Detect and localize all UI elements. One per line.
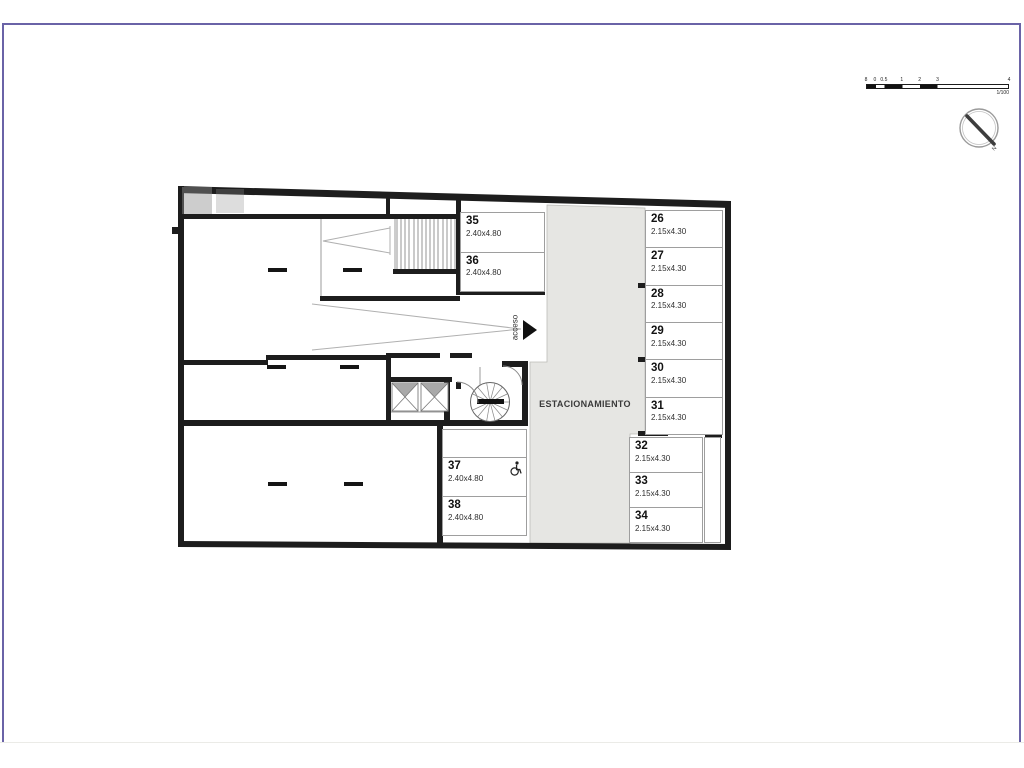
parking-spot-number: 33 bbox=[635, 475, 702, 489]
parking-spot: 31 2.15x4.30 bbox=[645, 397, 723, 435]
parking-spot-size: 2.40x4.80 bbox=[466, 229, 544, 239]
parking-spot: 34 2.15x4.30 bbox=[629, 507, 703, 543]
parking-spot-number: 34 bbox=[635, 510, 702, 524]
driveway-area bbox=[530, 205, 645, 543]
parking-spot: 32 2.15x4.30 bbox=[629, 437, 703, 473]
parking-spot-size: 2.15x4.30 bbox=[651, 339, 722, 349]
parking-spot-number: 38 bbox=[448, 499, 526, 513]
parking-spot: 36 2.40x4.80 bbox=[460, 252, 545, 293]
north-compass: N bbox=[950, 103, 1008, 159]
parking-spot-number: 32 bbox=[635, 440, 702, 454]
parking-spot-size: 2.15x4.30 bbox=[651, 264, 722, 274]
parking-column-26-31: 26 2.15x4.30 27 2.15x4.30 28 2.15x4.30 2… bbox=[645, 210, 723, 435]
parking-spot: 35 2.40x4.80 bbox=[460, 212, 545, 253]
page: 35 2.40x4.80 36 2.40x4.80 37 2.40x4.80 bbox=[0, 0, 1024, 768]
scale-tick-label: 4 bbox=[1008, 77, 1011, 84]
parking-spot-number: 31 bbox=[651, 400, 722, 414]
parking-column-37-38: 37 2.40x4.80 38 2.40x4.80 bbox=[442, 457, 527, 536]
parking-spot: 29 2.15x4.30 bbox=[645, 322, 723, 360]
scale-rule bbox=[866, 84, 1009, 89]
spiral-staircase bbox=[471, 383, 510, 422]
scale-tick-label: 0.5 bbox=[880, 77, 887, 84]
scale-bar: 00.512348 1/100 bbox=[866, 77, 1009, 96]
parking-spot-size: 2.15x4.30 bbox=[635, 524, 702, 534]
stair-treads bbox=[397, 219, 455, 269]
parking-area-label: ESTACIONAMIENTO bbox=[533, 399, 637, 409]
access-ramp-label: acceso bbox=[511, 306, 524, 350]
parking-spot-size: 2.15x4.30 bbox=[651, 227, 722, 237]
parking-spot-number: 27 bbox=[651, 250, 722, 264]
parking-spot-number: 28 bbox=[651, 288, 722, 302]
parking-spot: 37 2.40x4.80 bbox=[442, 457, 527, 497]
elevator-shafts bbox=[392, 383, 448, 411]
scale-tick-labels: 00.512348 bbox=[866, 77, 1009, 84]
parking-spot: 28 2.15x4.30 bbox=[645, 285, 723, 323]
floor-plan-drawing bbox=[0, 0, 1024, 768]
parking-spot-number: 30 bbox=[651, 362, 722, 376]
parking-column-32-34: 32 2.15x4.30 33 2.15x4.30 34 2.15x4.30 bbox=[629, 437, 703, 543]
floor-plan: 35 2.40x4.80 36 2.40x4.80 37 2.40x4.80 bbox=[0, 0, 1024, 768]
parking-spot-size: 2.15x4.30 bbox=[651, 376, 722, 386]
parking-spot-size: 2.15x4.30 bbox=[651, 413, 722, 423]
parking-spot-size: 2.15x4.30 bbox=[635, 454, 702, 464]
parking-spot-number: 35 bbox=[466, 215, 544, 229]
compass-north-label: N bbox=[991, 145, 998, 152]
parking-spot-number: 26 bbox=[651, 213, 722, 227]
parking-spot-number: 29 bbox=[651, 325, 722, 339]
compass-needle bbox=[967, 116, 994, 144]
access-arrow-icon bbox=[523, 320, 537, 340]
scale-tick-label: 2 bbox=[918, 77, 921, 84]
parking-spot: 38 2.40x4.80 bbox=[442, 496, 527, 536]
parking-spot-size: 2.15x4.30 bbox=[635, 489, 702, 499]
scale-tick-label: 0 bbox=[874, 77, 877, 84]
scale-tick-label: 1 bbox=[900, 77, 903, 84]
side-strip-cell bbox=[704, 437, 721, 543]
parking-spot: 26 2.15x4.30 bbox=[645, 210, 723, 248]
parking-spot: 30 2.15x4.30 bbox=[645, 359, 723, 397]
parking-column-35-36: 35 2.40x4.80 36 2.40x4.80 bbox=[460, 212, 545, 292]
wheelchair-icon bbox=[509, 461, 522, 476]
scale-tick-label: 8 bbox=[865, 77, 868, 84]
parking-spot-size: 2.40x4.80 bbox=[466, 268, 544, 278]
unlabeled-cell bbox=[442, 429, 527, 458]
parking-spot-number: 36 bbox=[466, 255, 544, 269]
scale-ratio-label: 1/100 bbox=[866, 90, 1009, 96]
scale-tick-label: 3 bbox=[936, 77, 939, 84]
parking-spot-size: 2.40x4.80 bbox=[448, 513, 526, 523]
parking-spot: 33 2.15x4.30 bbox=[629, 472, 703, 508]
parking-spot-size: 2.15x4.30 bbox=[651, 301, 722, 311]
parking-spot: 27 2.15x4.30 bbox=[645, 247, 723, 285]
